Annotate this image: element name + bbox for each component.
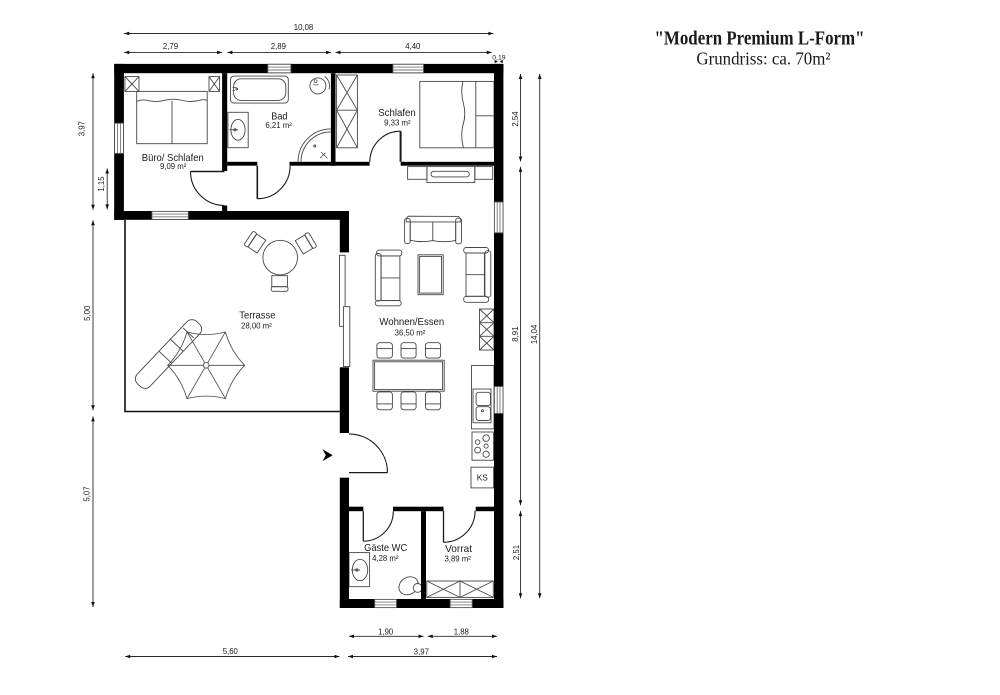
svg-text:36,50 m²: 36,50 m² [395, 328, 426, 337]
svg-text:5,00: 5,00 [83, 305, 92, 321]
svg-text:3,97: 3,97 [77, 121, 86, 136]
svg-text:5,07: 5,07 [82, 486, 91, 501]
svg-text:1,15: 1,15 [97, 176, 106, 192]
svg-text:Gäste WC: Gäste WC [364, 543, 408, 554]
svg-text:9,09 m²: 9,09 m² [160, 162, 187, 171]
svg-text:Schlafen: Schlafen [378, 108, 416, 119]
svg-text:2,89: 2,89 [271, 42, 286, 51]
svg-text:1,88: 1,88 [454, 627, 469, 636]
svg-text:28,00 m²: 28,00 m² [241, 322, 272, 331]
svg-text:0,19: 0,19 [492, 55, 505, 62]
svg-text:2,51: 2,51 [512, 545, 521, 560]
svg-text:14,04: 14,04 [530, 324, 539, 344]
svg-text:10,08: 10,08 [294, 23, 314, 32]
svg-text:3,89 m²: 3,89 m² [444, 555, 471, 564]
svg-text:2,54: 2,54 [511, 111, 520, 127]
svg-text:Wohnen/Essen: Wohnen/Essen [379, 317, 444, 328]
svg-text:6,21 m²: 6,21 m² [265, 121, 292, 130]
svg-text:1,90: 1,90 [378, 627, 394, 636]
svg-text:8,91: 8,91 [511, 327, 520, 342]
svg-text:KS: KS [477, 473, 489, 483]
svg-text:9,33 m²: 9,33 m² [384, 119, 411, 128]
svg-text:Terrasse: Terrasse [239, 311, 275, 322]
svg-text:Grundriss: ca. 70m²: Grundriss: ca. 70m² [696, 48, 830, 68]
svg-text:4,40: 4,40 [405, 42, 421, 51]
svg-text:2,79: 2,79 [163, 42, 178, 51]
svg-text:Vorrat: Vorrat [445, 544, 472, 555]
svg-text:"Modern Premium L-Form": "Modern Premium L-Form" [655, 28, 865, 50]
svg-text:5,60: 5,60 [223, 647, 239, 656]
svg-text:3,97: 3,97 [414, 647, 429, 656]
svg-text:4,28 m²: 4,28 m² [372, 554, 399, 563]
